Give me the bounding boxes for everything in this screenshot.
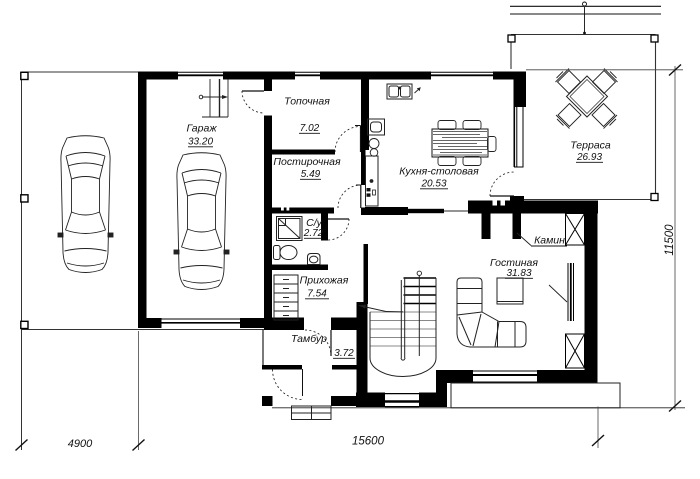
svg-text:4900: 4900 (68, 438, 93, 450)
svg-text:11500: 11500 (664, 224, 676, 256)
svg-text:Тамбур: Тамбур (291, 333, 327, 345)
svg-text:Камин: Камин (534, 235, 565, 247)
svg-text:15600: 15600 (352, 436, 385, 448)
svg-text:3.72: 3.72 (334, 348, 354, 359)
svg-text:2.72: 2.72 (303, 228, 324, 239)
svg-text:Постирочная: Постирочная (273, 156, 341, 168)
svg-text:20.53: 20.53 (420, 179, 446, 190)
svg-text:Терраса: Терраса (570, 140, 611, 152)
svg-text:Кухня-столовая: Кухня-столовая (399, 166, 479, 178)
svg-text:7.02: 7.02 (300, 123, 320, 134)
svg-text:Топочная: Топочная (284, 96, 330, 108)
svg-text:33.20: 33.20 (188, 137, 213, 148)
svg-text:7.54: 7.54 (307, 289, 327, 300)
svg-text:5.49: 5.49 (301, 169, 321, 180)
svg-text:Гараж: Гараж (186, 123, 217, 135)
svg-text:Прихожая: Прихожая (300, 275, 349, 287)
svg-text:31.83: 31.83 (506, 268, 531, 279)
svg-text:26.93: 26.93 (576, 152, 602, 163)
